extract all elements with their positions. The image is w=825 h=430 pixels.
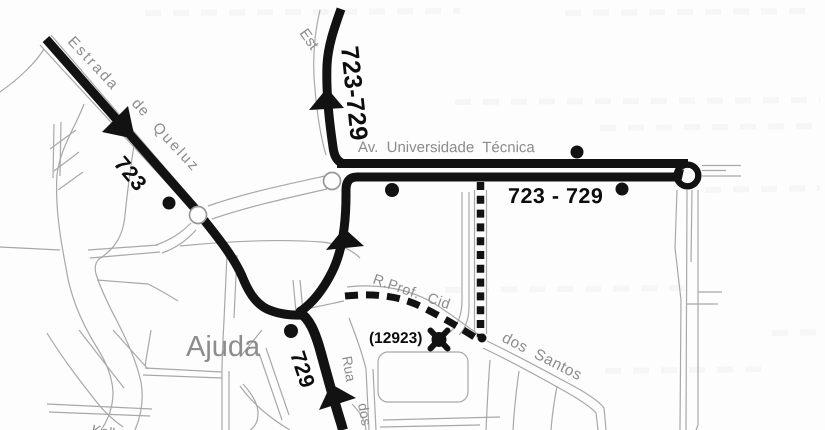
svg-text:723 - 729: 723 - 729 <box>508 184 603 208</box>
svg-text:(12923): (12923) <box>369 330 422 347</box>
svg-text:Av. Universidade Técnica: Av. Universidade Técnica <box>358 139 535 156</box>
svg-text:Ajuda: Ajuda <box>186 331 261 363</box>
